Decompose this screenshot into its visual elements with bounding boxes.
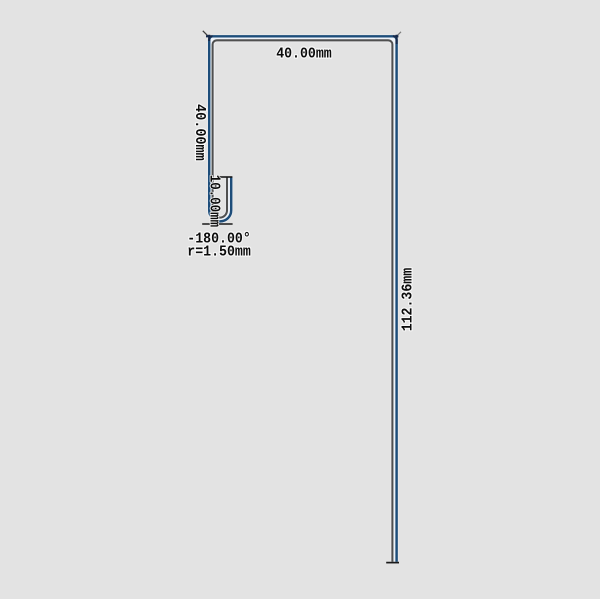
svg-text:40.00mm: 40.00mm <box>276 46 332 63</box>
svg-text:r=1.50mm: r=1.50mm <box>187 244 250 261</box>
svg-text:10.00mm: 10.00mm <box>205 175 221 227</box>
svg-text:40.00mm: 40.00mm <box>191 104 208 161</box>
svg-text:112.36mm: 112.36mm <box>400 268 417 331</box>
